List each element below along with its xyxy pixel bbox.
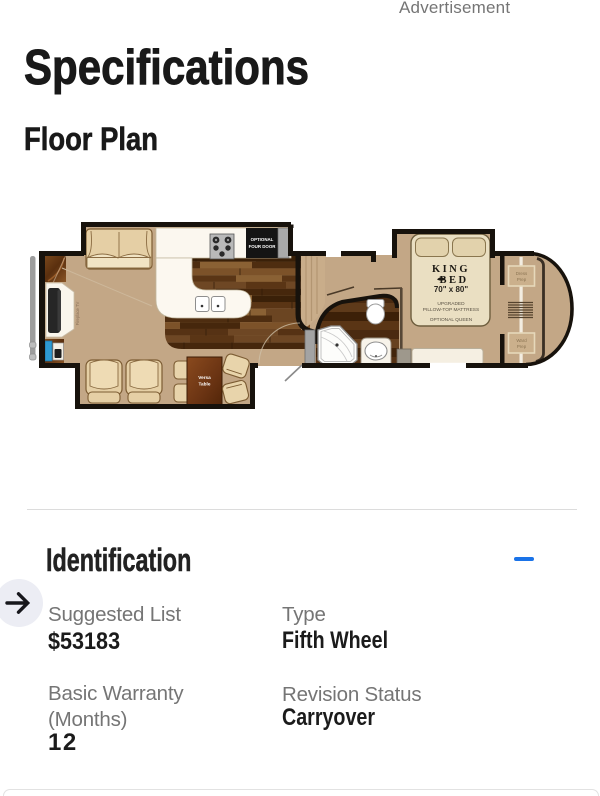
svg-text:Versa: Versa: [198, 375, 211, 380]
svg-text:KING: KING: [432, 264, 470, 275]
svg-text:OPTIONAL QUEEN: OPTIONAL QUEEN: [430, 317, 473, 323]
svg-text:Prep: Prep: [517, 277, 527, 282]
svg-text:Prep: Prep: [517, 344, 527, 349]
svg-text:70" x 80": 70" x 80": [434, 285, 468, 294]
svg-text:Ward: Ward: [516, 338, 527, 343]
svg-text:FOUR DOOR: FOUR DOOR: [249, 244, 277, 249]
svg-text:Fireplace TV: Fireplace TV: [75, 301, 80, 325]
svg-text:UPGRADED: UPGRADED: [437, 301, 465, 307]
svg-text:Dress: Dress: [516, 271, 528, 276]
svg-text:OPTIONAL: OPTIONAL: [251, 237, 274, 242]
svg-text:Table: Table: [199, 382, 211, 387]
svg-text:PILLOW-TOP MATTRESS: PILLOW-TOP MATTRESS: [423, 307, 479, 313]
